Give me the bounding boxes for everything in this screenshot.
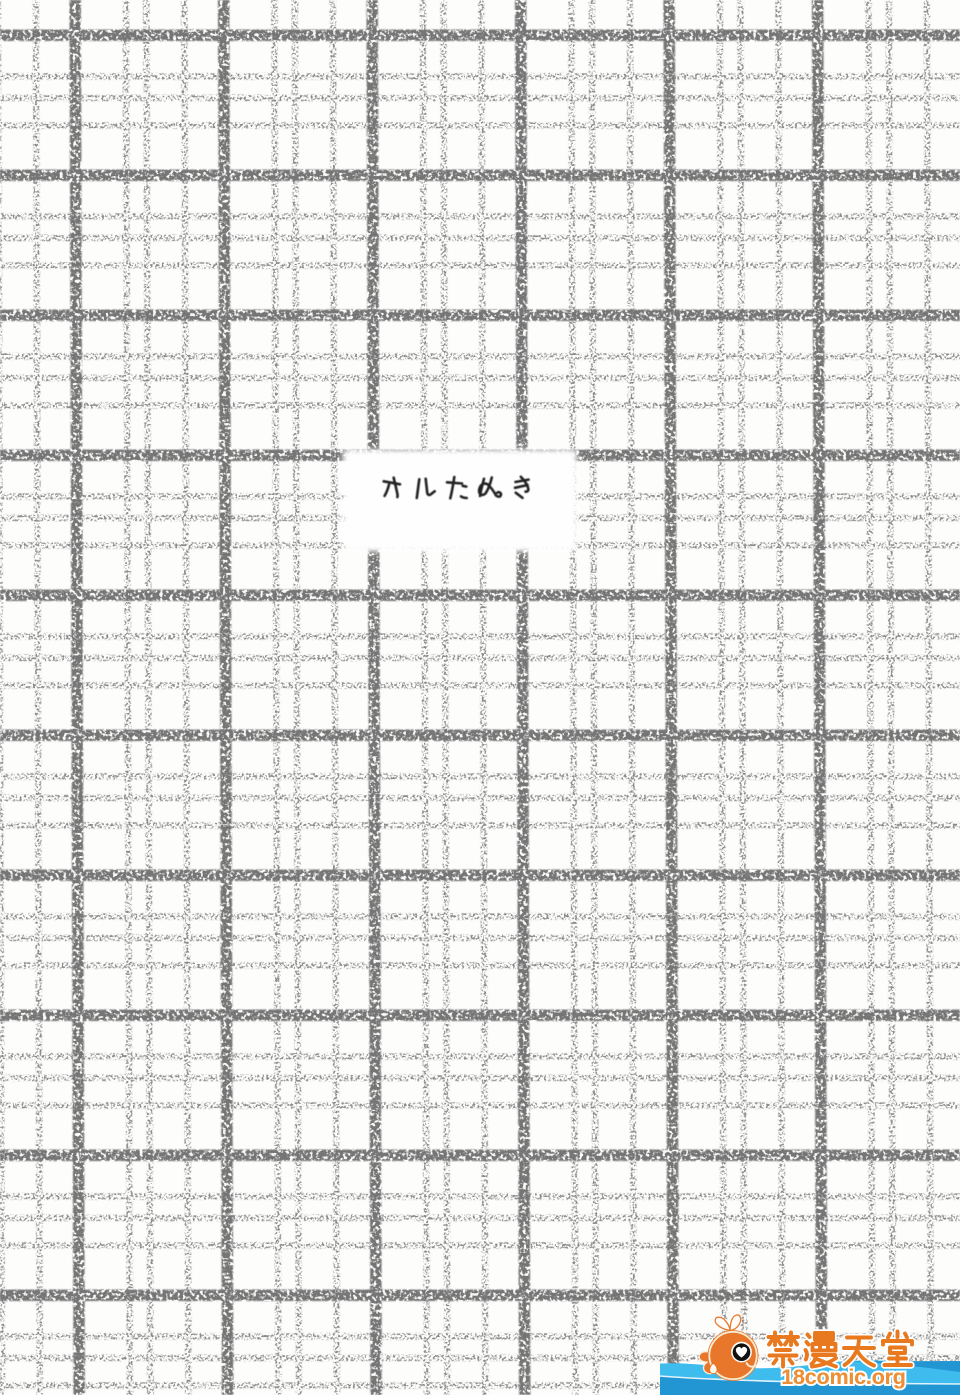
svg-text:18comic.org: 18comic.org <box>781 1365 905 1389</box>
